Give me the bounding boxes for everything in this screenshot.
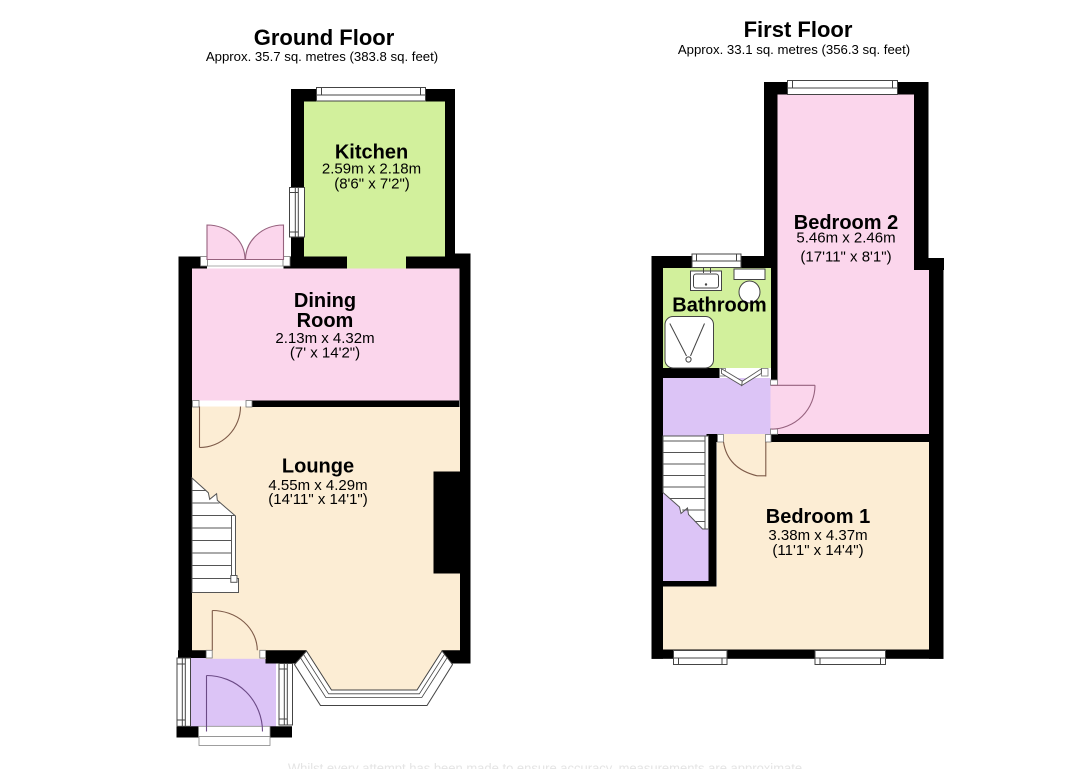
svg-text:Lounge: Lounge [282,456,354,478]
svg-text:(14'11" x 14'1"): (14'11" x 14'1") [268,491,368,508]
svg-text:Approx. 35.7 sq. metres (383.8: Approx. 35.7 sq. metres (383.8 sq. feet) [206,49,438,64]
svg-text:Dining: Dining [294,290,356,312]
svg-text:Room: Room [297,310,354,332]
svg-text:Bathroom: Bathroom [672,295,766,317]
svg-text:Bedroom 1: Bedroom 1 [766,506,870,528]
svg-text:Approx. 33.1 sq. metres (356.3: Approx. 33.1 sq. metres (356.3 sq. feet) [678,42,910,57]
svg-text:(11'1" x 14'4"): (11'1" x 14'4") [772,542,863,559]
svg-text:(8'6" x 7'2"): (8'6" x 7'2") [334,176,410,193]
svg-text:(17'11" x 8'1"): (17'11" x 8'1") [800,249,891,266]
svg-text:Whilst every attempt has been: Whilst every attempt has been made to en… [288,761,802,769]
svg-text:Ground Floor: Ground Floor [254,25,395,50]
svg-text:First Floor: First Floor [744,17,853,42]
svg-text:(7' x 14'2"): (7' x 14'2") [290,345,360,362]
svg-text:5.46m x 2.46m: 5.46m x 2.46m [796,230,895,247]
